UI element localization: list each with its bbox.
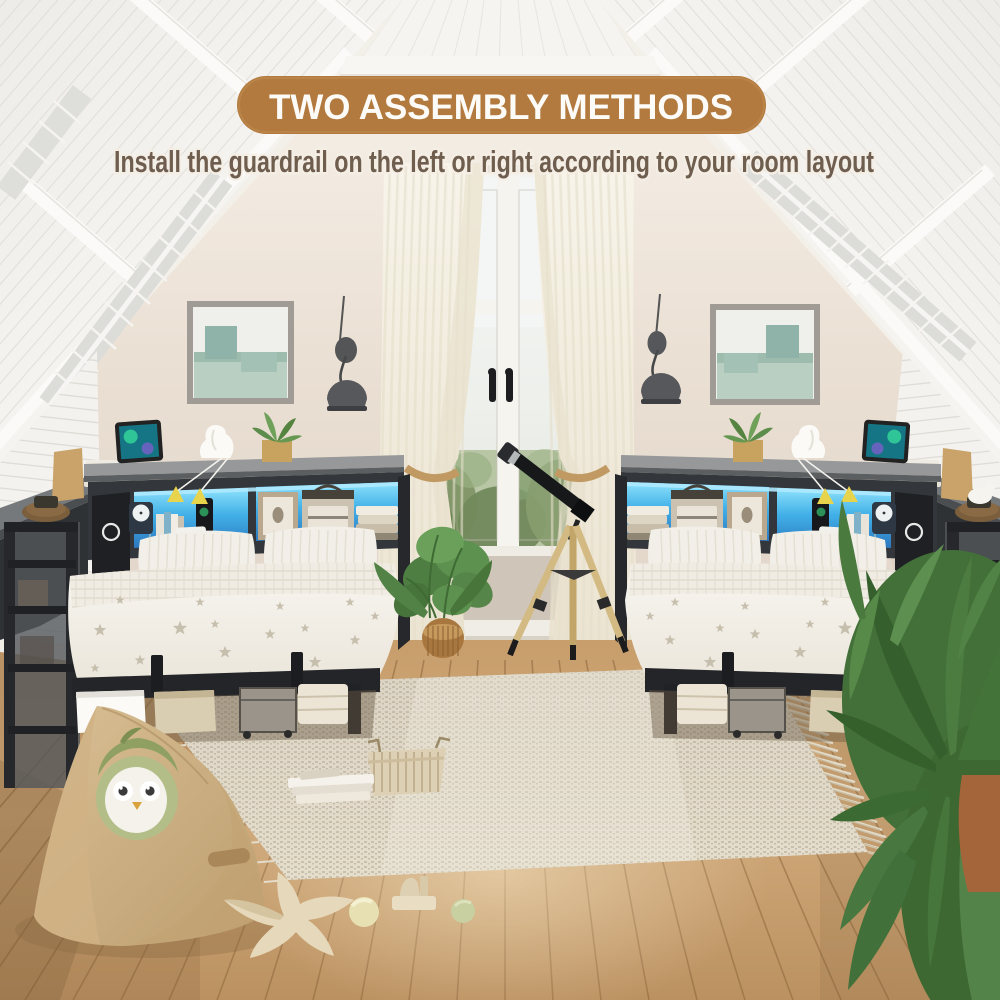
svg-text:TWO ASSEMBLY METHODS: TWO ASSEMBLY METHODS <box>269 88 733 127</box>
svg-text:Install the guardrail on the l: Install the guardrail on the left or rig… <box>114 144 874 179</box>
